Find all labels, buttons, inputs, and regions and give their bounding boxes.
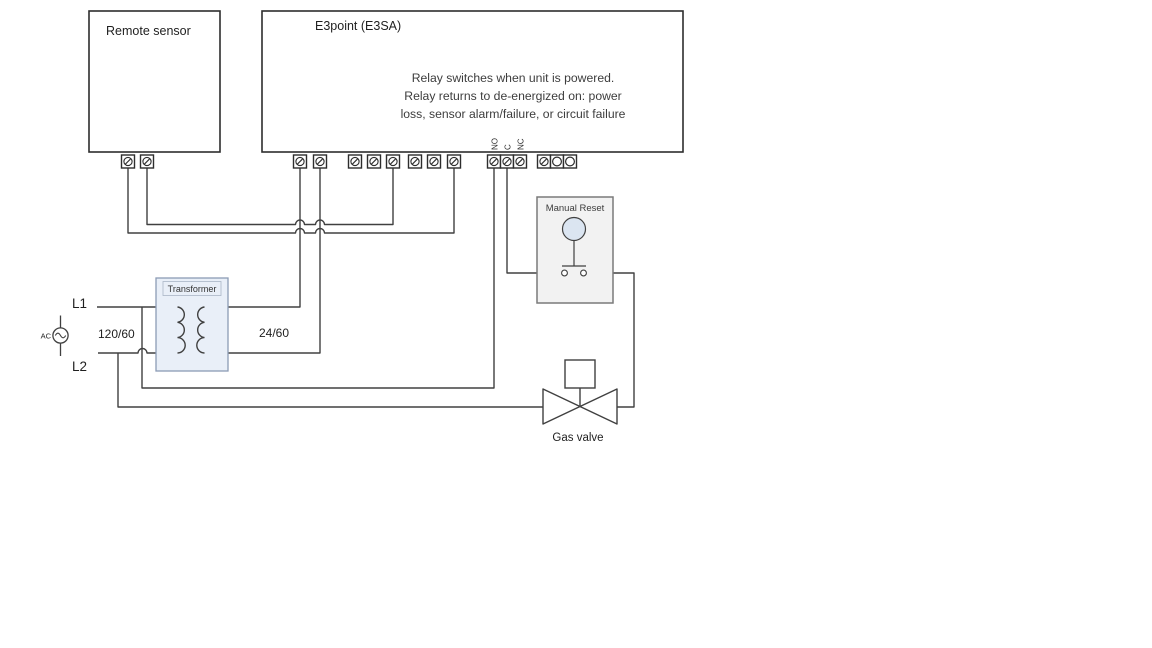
- valve-body-left: [543, 389, 580, 424]
- primary-rating-label: 120/60: [98, 327, 135, 341]
- valve-actuator: [565, 360, 595, 388]
- transformer-box: Transformer: [156, 278, 228, 371]
- e3point-relay-terminals: [488, 155, 527, 168]
- terminal-screw: [538, 155, 551, 168]
- remote-sensor-title: Remote sensor: [106, 24, 191, 38]
- ac-source: AC: [41, 316, 69, 357]
- manual-reset-title: Manual Reset: [546, 203, 605, 214]
- label-nc: NC: [517, 138, 526, 150]
- relay-note-line3: loss, sensor alarm/failure, or circuit f…: [401, 107, 626, 121]
- terminal-screw: [428, 155, 441, 168]
- reset-contact-left: [562, 270, 568, 276]
- remote-sensor-box: Remote sensor: [89, 11, 220, 152]
- e3point-sensor-terminals: [349, 155, 461, 168]
- terminal-screw: [368, 155, 381, 168]
- e3point-power-terminals: [294, 155, 327, 168]
- reset-button-icon: [563, 218, 586, 241]
- terminal-plain: [564, 155, 577, 168]
- relay-note-line2: Relay returns to de-energized on: power: [404, 89, 621, 103]
- manual-reset-box: Manual Reset: [537, 197, 613, 303]
- terminal-plain: [551, 155, 564, 168]
- terminal-screw: [314, 155, 327, 168]
- terminal-screw-no: [488, 155, 501, 168]
- transformer-title: Transformer: [168, 284, 217, 294]
- terminal-screw-c: [501, 155, 514, 168]
- secondary-rating-label: 24/60: [259, 326, 289, 340]
- terminal-screw-nc: [514, 155, 527, 168]
- relay-note-line1: Relay switches when unit is powered.: [412, 71, 615, 85]
- l2-label: L2: [72, 359, 87, 374]
- terminal-screw: [448, 155, 461, 168]
- terminal-screw: [294, 155, 307, 168]
- valve-body-right: [580, 389, 617, 424]
- gas-valve: [543, 360, 617, 424]
- wiring-diagram-page: Remote sensor E3point (E3SA) Relay switc…: [0, 0, 1152, 648]
- gas-valve-label: Gas valve: [552, 432, 603, 444]
- e3point-aux-terminals: [538, 155, 577, 168]
- e3point-title: E3point (E3SA): [315, 19, 401, 33]
- ac-label: AC: [41, 332, 52, 341]
- wiring-diagram: Remote sensor E3point (E3SA) Relay switc…: [0, 0, 1152, 648]
- e3point-box: E3point (E3SA) Relay switches when unit …: [262, 11, 683, 152]
- l1-label: L1: [72, 296, 87, 311]
- remote-sensor-terminals: [122, 155, 154, 168]
- label-c: C: [504, 144, 513, 150]
- label-no: NO: [491, 138, 500, 150]
- wire-remote1-to-e3point: [128, 168, 454, 233]
- terminal-screw: [349, 155, 362, 168]
- reset-contact-right: [581, 270, 587, 276]
- terminal-screw: [409, 155, 422, 168]
- terminal-screw: [387, 155, 400, 168]
- terminal-screw: [122, 155, 135, 168]
- terminal-screw: [141, 155, 154, 168]
- wire-remote2-to-e3point: [147, 168, 393, 225]
